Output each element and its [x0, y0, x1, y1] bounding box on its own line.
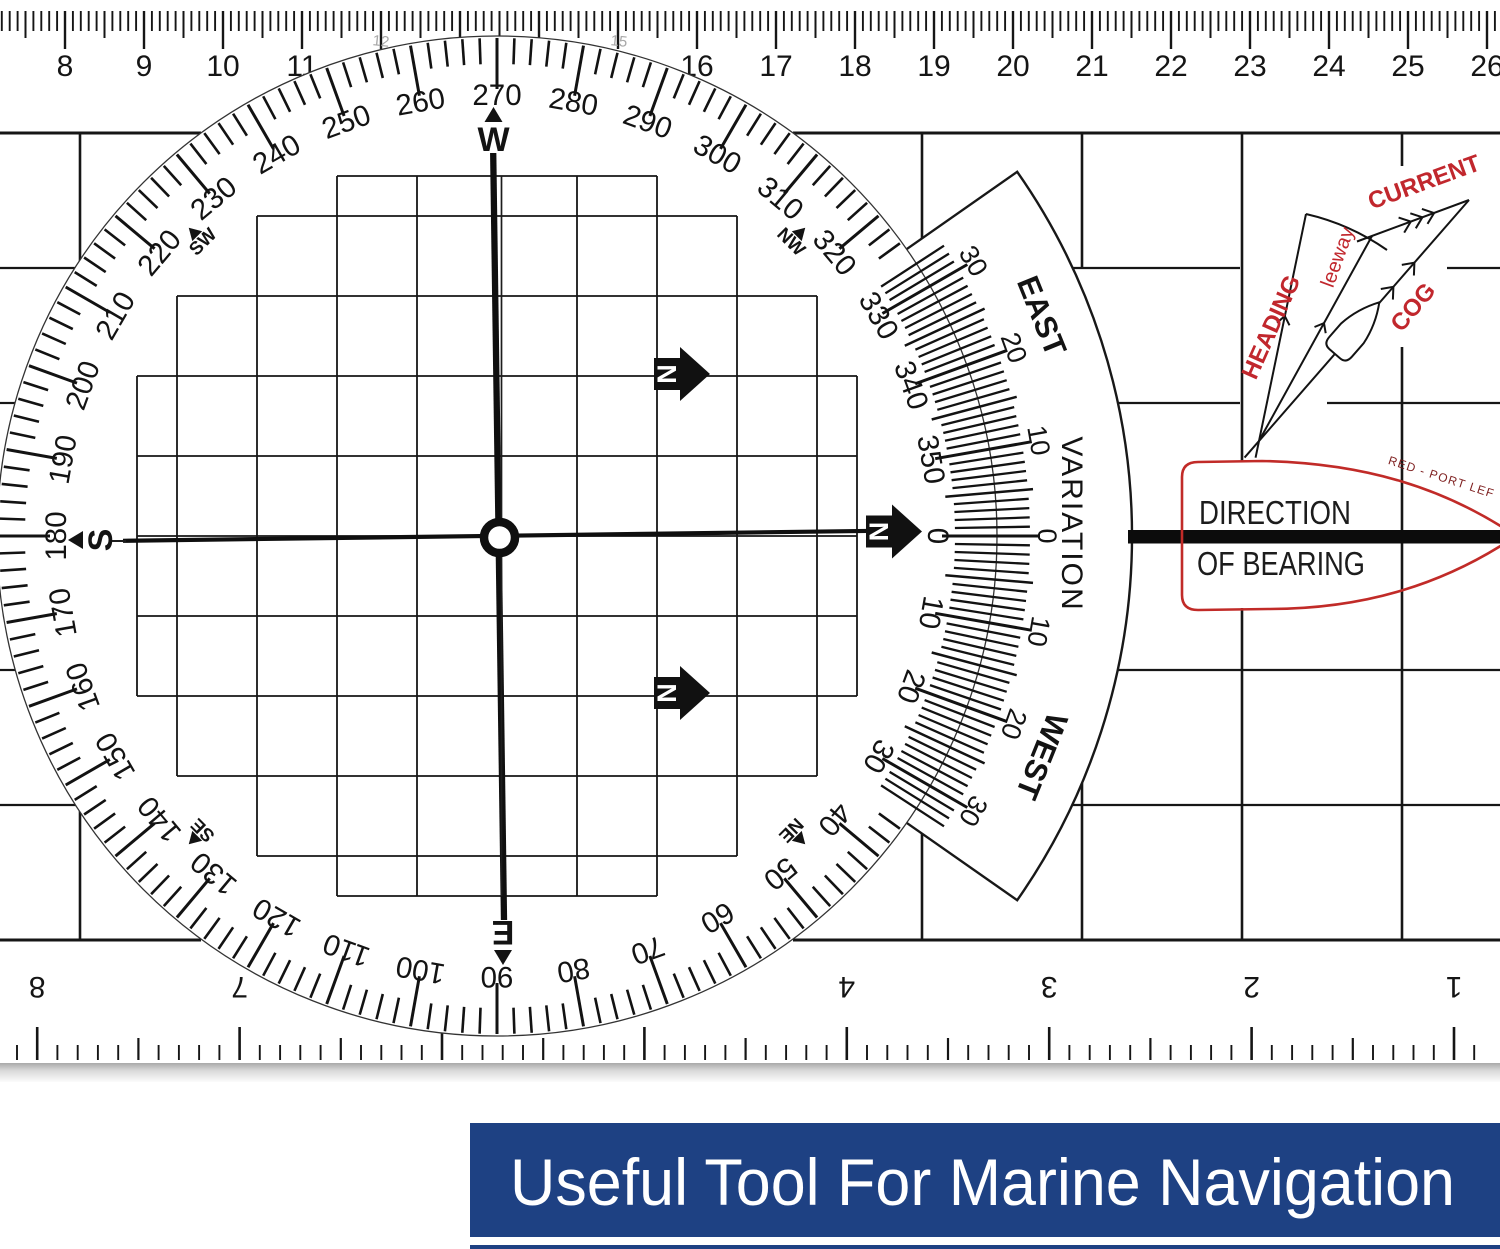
svg-text:21: 21: [1075, 50, 1108, 83]
svg-text:9: 9: [136, 50, 153, 83]
svg-text:17: 17: [759, 50, 792, 83]
svg-text:N: N: [864, 522, 894, 542]
svg-text:4: 4: [838, 970, 855, 1003]
svg-text:18: 18: [838, 50, 871, 83]
svg-text:VARIATION: VARIATION: [1055, 436, 1088, 611]
svg-text:19: 19: [917, 50, 950, 83]
svg-text:8: 8: [29, 970, 46, 1003]
svg-text:80: 80: [554, 951, 592, 989]
svg-text:8: 8: [57, 50, 74, 83]
svg-text:25: 25: [1391, 50, 1424, 83]
svg-text:23: 23: [1233, 50, 1266, 83]
svg-text:180: 180: [40, 511, 73, 560]
svg-text:22: 22: [1154, 50, 1187, 83]
svg-text:10: 10: [1021, 614, 1056, 649]
svg-text:2: 2: [1243, 970, 1260, 1003]
svg-text:7: 7: [231, 970, 248, 1003]
svg-text:OF BEARING: OF BEARING: [1197, 545, 1365, 582]
svg-text:24: 24: [1312, 50, 1345, 83]
svg-text:N: N: [652, 683, 682, 703]
svg-text:Useful Tool For Marine Navigat: Useful Tool For Marine Navigation: [510, 1145, 1455, 1219]
svg-text:3: 3: [1041, 970, 1058, 1003]
svg-text:10: 10: [912, 593, 950, 631]
svg-text:10: 10: [206, 50, 239, 83]
svg-text:20: 20: [996, 50, 1029, 83]
svg-text:DIRECTION: DIRECTION: [1199, 494, 1351, 531]
svg-text:270: 270: [472, 79, 521, 112]
svg-text:N: N: [652, 364, 682, 384]
svg-text:15: 15: [610, 32, 628, 51]
svg-text:90: 90: [481, 960, 514, 993]
svg-text:10: 10: [1021, 423, 1056, 458]
svg-text:1: 1: [1446, 970, 1463, 1003]
svg-text:26: 26: [1470, 50, 1500, 83]
